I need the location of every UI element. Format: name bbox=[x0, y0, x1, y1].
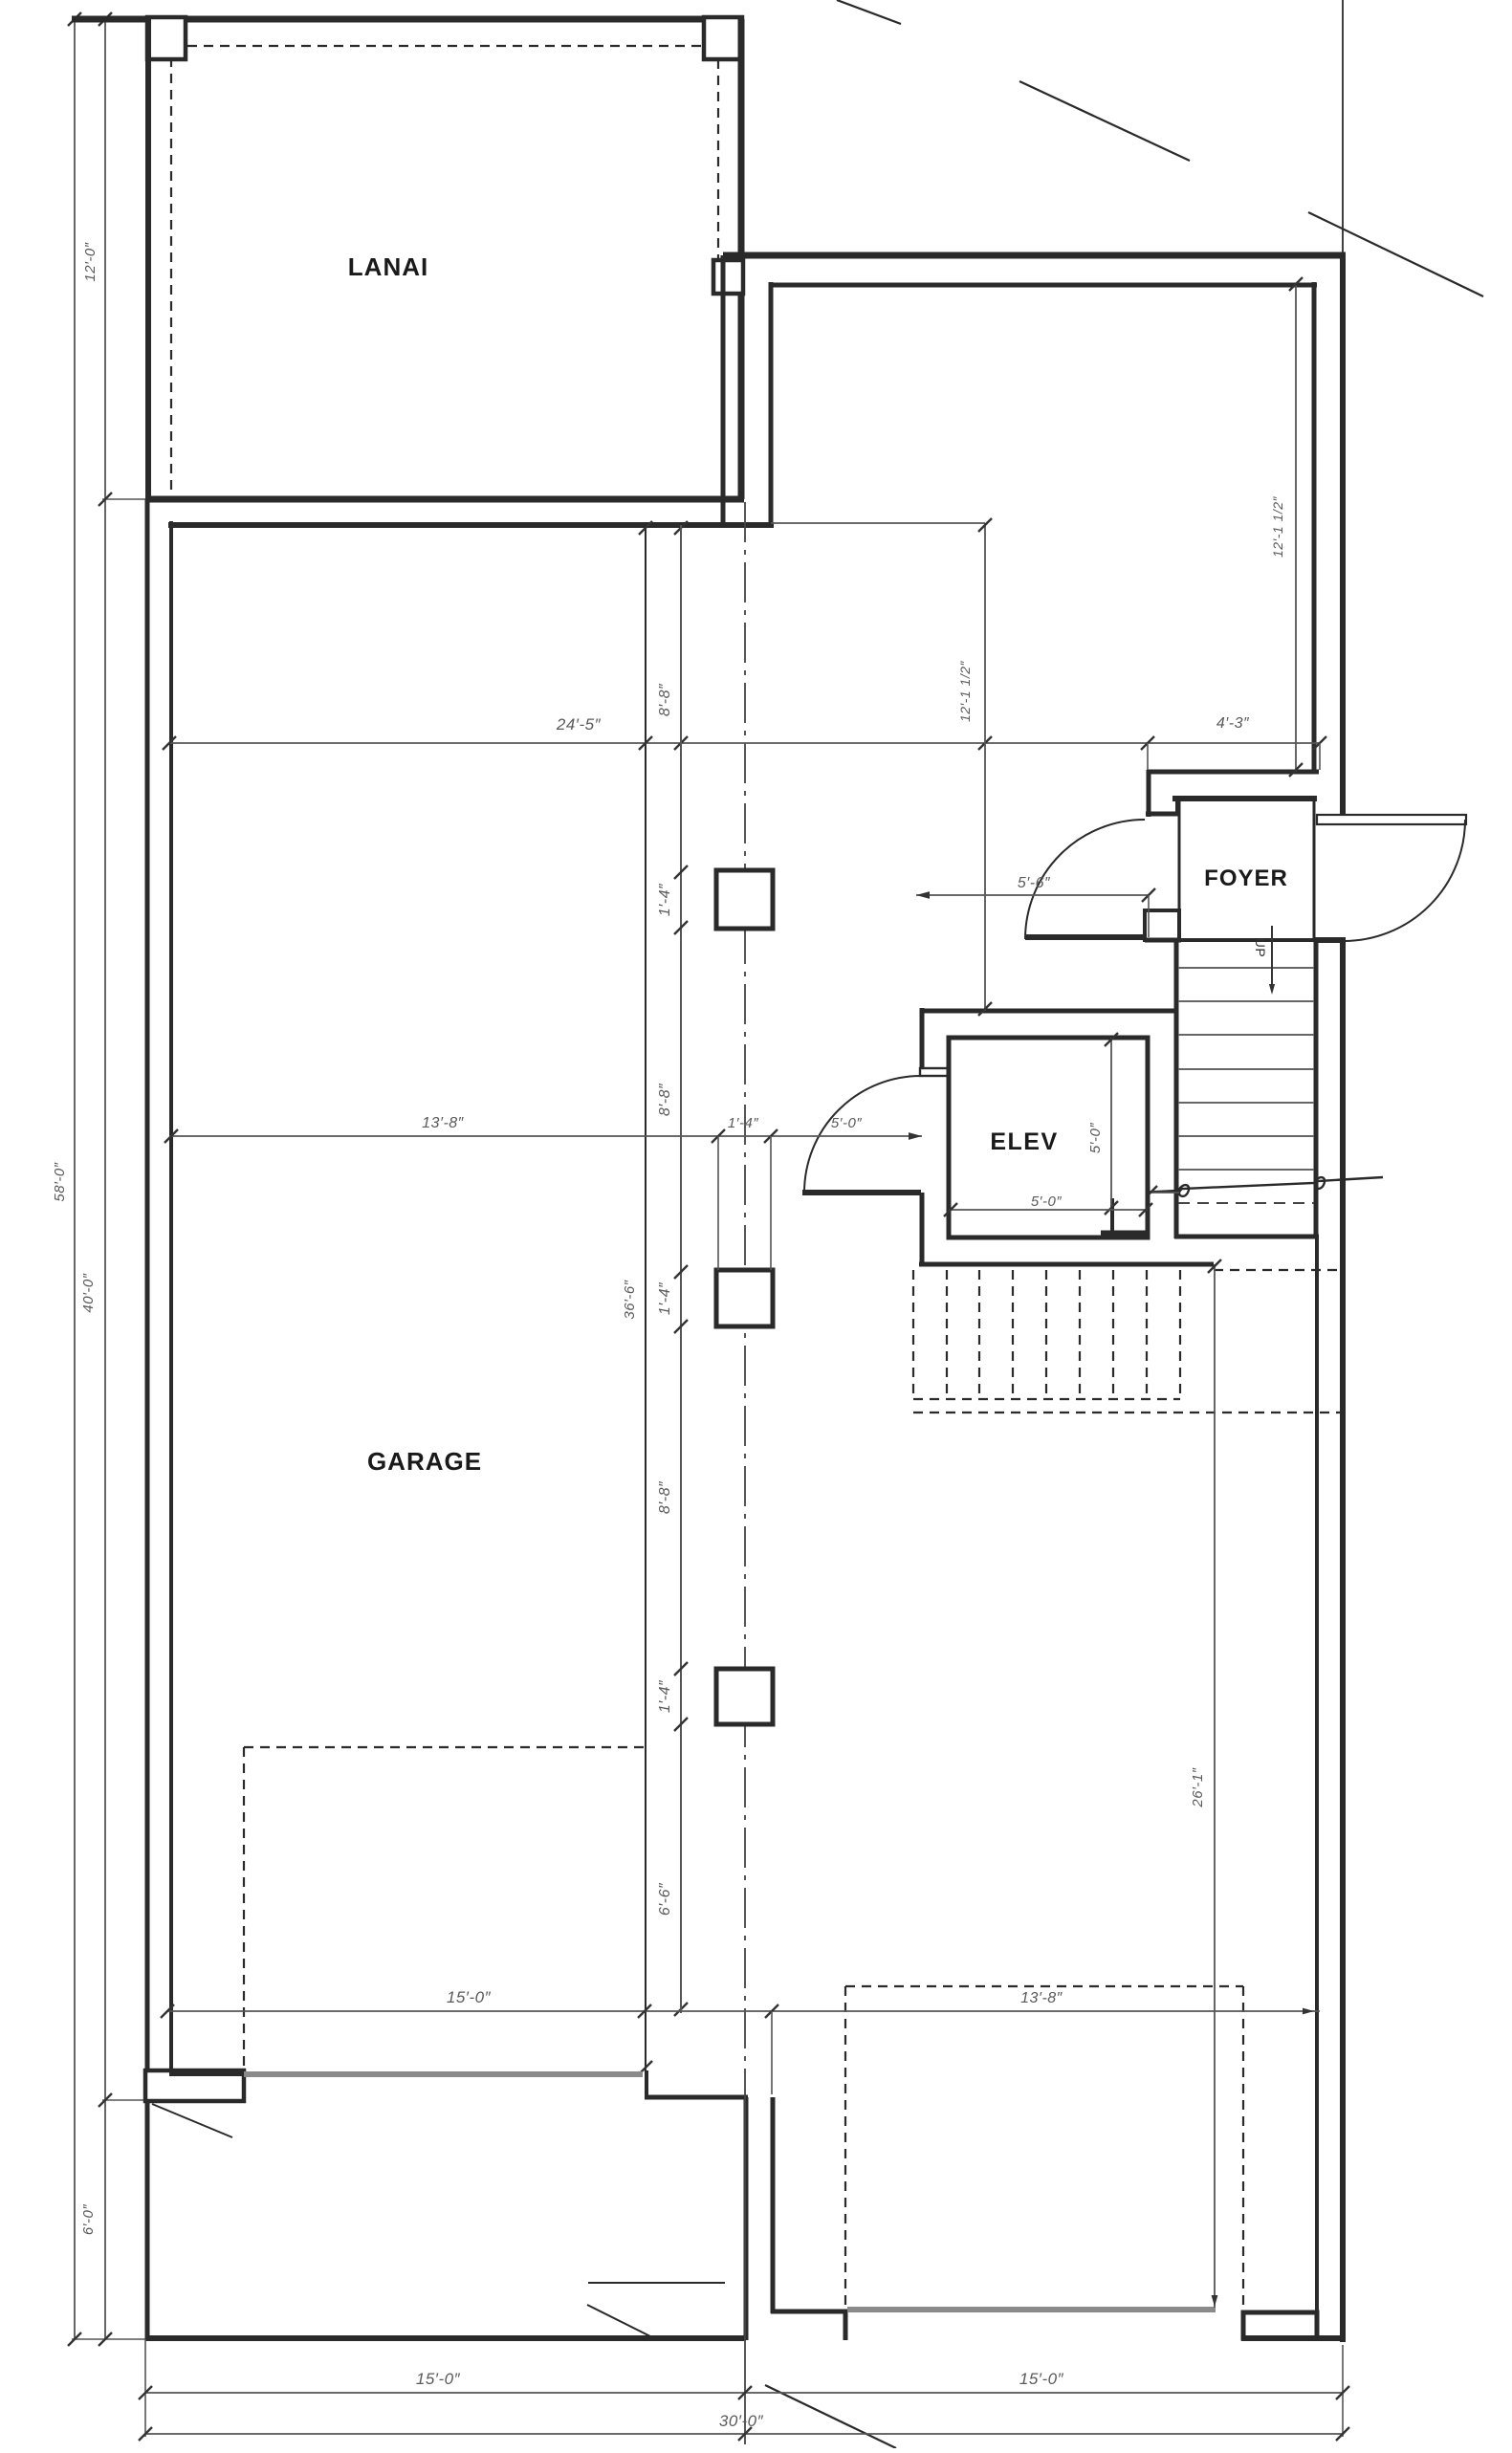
svg-text:5′-0″: 5′-0″ bbox=[1031, 1194, 1062, 1210]
svg-text:4′-3″: 4′-3″ bbox=[1216, 715, 1250, 732]
svg-text:5′-0″: 5′-0″ bbox=[1087, 1123, 1104, 1153]
svg-text:12′-0″: 12′-0″ bbox=[82, 242, 99, 281]
svg-text:GARAGE: GARAGE bbox=[367, 1447, 482, 1476]
svg-text:13′-8″: 13′-8″ bbox=[422, 1115, 465, 1131]
svg-text:13′-8″: 13′-8″ bbox=[1020, 1990, 1063, 2006]
svg-text:FOYER: FOYER bbox=[1204, 865, 1288, 891]
svg-text:24′-5″: 24′-5″ bbox=[556, 715, 602, 734]
svg-text:12′-1 1/2″: 12′-1 1/2″ bbox=[1270, 495, 1285, 557]
svg-text:15′-0″: 15′-0″ bbox=[416, 2370, 461, 2388]
svg-text:UP: UP bbox=[1253, 938, 1268, 957]
svg-text:1′-4″: 1′-4″ bbox=[728, 1115, 758, 1131]
svg-text:8′-8″: 8′-8″ bbox=[657, 1083, 673, 1116]
svg-text:40′-0″: 40′-0″ bbox=[80, 1273, 97, 1312]
svg-text:15′-0″: 15′-0″ bbox=[447, 1988, 492, 2006]
svg-text:58′-0″: 58′-0″ bbox=[52, 1162, 68, 1201]
svg-text:15′-0″: 15′-0″ bbox=[1019, 2370, 1064, 2388]
svg-text:1′-4″: 1′-4″ bbox=[657, 1281, 673, 1315]
svg-text:1′-4″: 1′-4″ bbox=[657, 883, 673, 916]
svg-text:8′-8″: 8′-8″ bbox=[657, 683, 673, 716]
svg-text:1′-4″: 1′-4″ bbox=[657, 1679, 673, 1713]
svg-text:6′-0″: 6′-0″ bbox=[80, 2204, 97, 2235]
svg-text:26′-1″: 26′-1″ bbox=[1190, 1767, 1206, 1807]
svg-text:5′-6″: 5′-6″ bbox=[1018, 875, 1051, 891]
svg-text:ELEV: ELEV bbox=[990, 1128, 1058, 1155]
svg-text:12′-1 1/2″: 12′-1 1/2″ bbox=[957, 660, 973, 721]
svg-text:6′-6″: 6′-6″ bbox=[657, 1882, 673, 1916]
svg-text:5′-0″: 5′-0″ bbox=[831, 1115, 862, 1131]
svg-text:30′-0″: 30′-0″ bbox=[719, 2412, 764, 2430]
svg-text:8′-8″: 8′-8″ bbox=[657, 1480, 673, 1514]
svg-text:LANAI: LANAI bbox=[348, 252, 428, 281]
svg-text:36′-6″: 36′-6″ bbox=[622, 1280, 638, 1319]
